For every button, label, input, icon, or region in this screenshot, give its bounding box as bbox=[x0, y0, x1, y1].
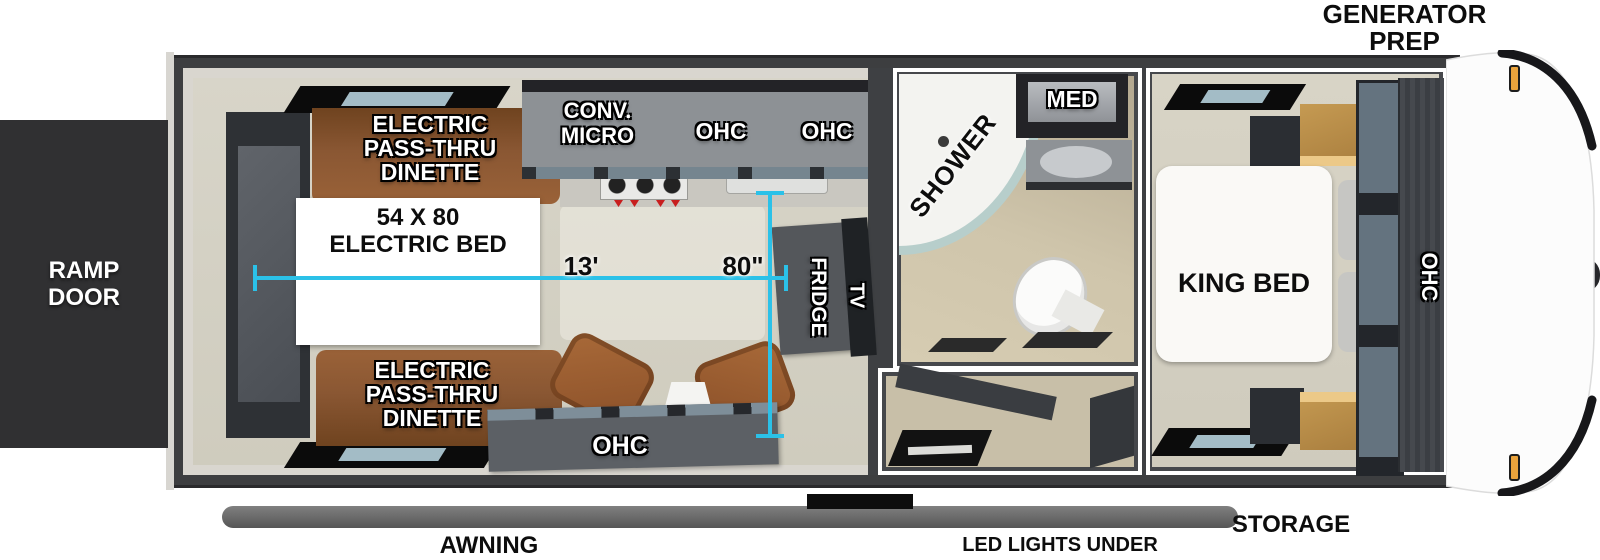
bedroom-cabinet-top bbox=[1250, 116, 1304, 168]
fridge-label: FRIDGE bbox=[806, 237, 830, 357]
electric-bed-label: 54 X 80 ELECTRIC BED bbox=[318, 204, 518, 258]
marker-light bbox=[1510, 66, 1519, 91]
length-dimension-label: 13' bbox=[536, 251, 626, 282]
awning-label: AWNING bbox=[414, 532, 564, 560]
width-dimension-label: 80" bbox=[698, 251, 788, 282]
king-bed bbox=[1156, 166, 1332, 362]
skylight-glass bbox=[1200, 90, 1270, 103]
marker-light bbox=[1510, 455, 1519, 480]
generator-prep-label: GENERATOR PREP bbox=[1322, 1, 1487, 55]
awning-bar bbox=[222, 506, 1238, 528]
bedroom-ohc-label: OHC bbox=[1416, 237, 1442, 317]
ramp-door: RAMP DOOR bbox=[0, 120, 168, 448]
dimension-cap bbox=[756, 434, 784, 438]
front-cap bbox=[1446, 50, 1598, 496]
ohc-left-label: OHC bbox=[686, 118, 756, 145]
wardrobe-glass-doors bbox=[1356, 80, 1404, 476]
ramp-door-label: RAMP DOOR bbox=[34, 257, 134, 311]
dinette-top-label: ELECTRIC PASS-THRU DINETTE bbox=[350, 112, 510, 184]
king-bed-label: KING BED bbox=[1154, 268, 1334, 299]
skylight-glass bbox=[341, 92, 454, 106]
storage-label: STORAGE bbox=[1226, 511, 1356, 539]
entry-step bbox=[807, 494, 913, 509]
med-label: MED bbox=[1018, 86, 1126, 113]
ohc-right-label: OHC bbox=[792, 118, 862, 145]
sink-ledge bbox=[1026, 182, 1132, 190]
skylight-glass bbox=[338, 448, 446, 461]
dimension-cap bbox=[756, 191, 784, 195]
bedroom-cabinet-bottom bbox=[1250, 388, 1304, 444]
tv-label: TV bbox=[845, 266, 868, 326]
bath-mat bbox=[1022, 332, 1113, 348]
ohc-entertainment-label: OHC bbox=[560, 432, 680, 461]
floorplan: RAMP DOOR ELECTRIC PASS-THRU DINETTE ELE… bbox=[0, 0, 1600, 560]
led-lights-label: LED LIGHTS UNDER AWNING bbox=[930, 534, 1190, 560]
bathroom-sink-basin bbox=[1040, 146, 1112, 178]
width-dimension-line bbox=[768, 192, 772, 437]
dinette-bottom-label: ELECTRIC PASS-THRU DINETTE bbox=[352, 358, 512, 430]
entry-corner-cabinet bbox=[1090, 386, 1134, 469]
conv-micro-label: CONV. MICRO bbox=[540, 98, 655, 148]
dimension-cap bbox=[253, 265, 257, 291]
under-cabinet-trim bbox=[522, 167, 868, 179]
rear-wall-window bbox=[238, 146, 300, 402]
skylight-bedroom-top bbox=[1164, 84, 1306, 110]
